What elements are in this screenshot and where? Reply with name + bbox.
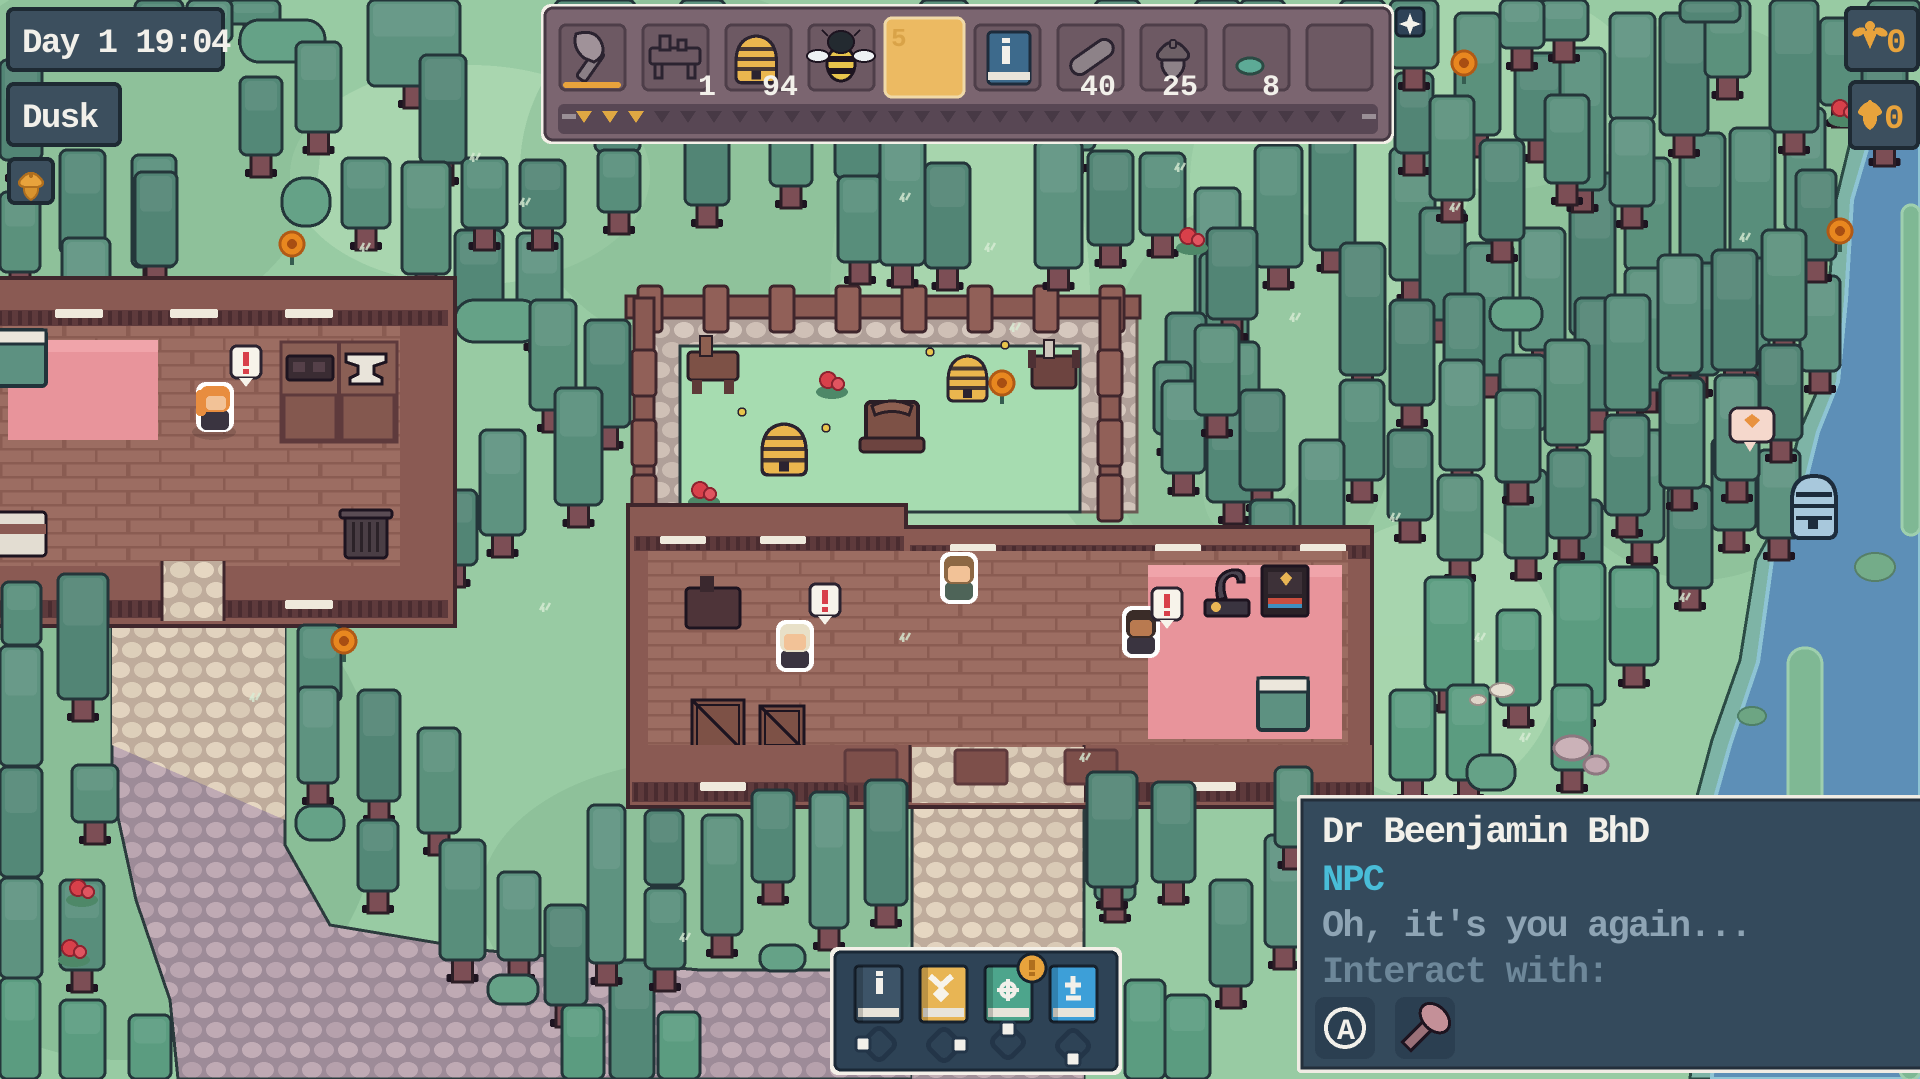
svg-text:Oh, it's you again...: Oh, it's you again... [1322, 906, 1750, 948]
svg-text:5: 5 [891, 24, 907, 54]
svg-text:Dusk: Dusk [22, 100, 99, 138]
svg-text:NPC: NPC [1322, 860, 1385, 902]
svg-text:25: 25 [1162, 71, 1198, 105]
svg-text:0: 0 [1886, 25, 1906, 63]
svg-text:A: A [1337, 1015, 1355, 1049]
svg-text:Day 1 19:04: Day 1 19:04 [22, 25, 231, 63]
svg-text:Dr Beenjamin BhD: Dr Beenjamin BhD [1322, 812, 1649, 854]
svg-text:1: 1 [698, 71, 716, 105]
svg-text:40: 40 [1080, 71, 1116, 105]
svg-text:94: 94 [762, 71, 798, 105]
svg-text:8: 8 [1262, 71, 1280, 105]
svg-text:Interact with:: Interact with: [1322, 952, 1608, 994]
svg-text:0: 0 [1884, 101, 1904, 139]
